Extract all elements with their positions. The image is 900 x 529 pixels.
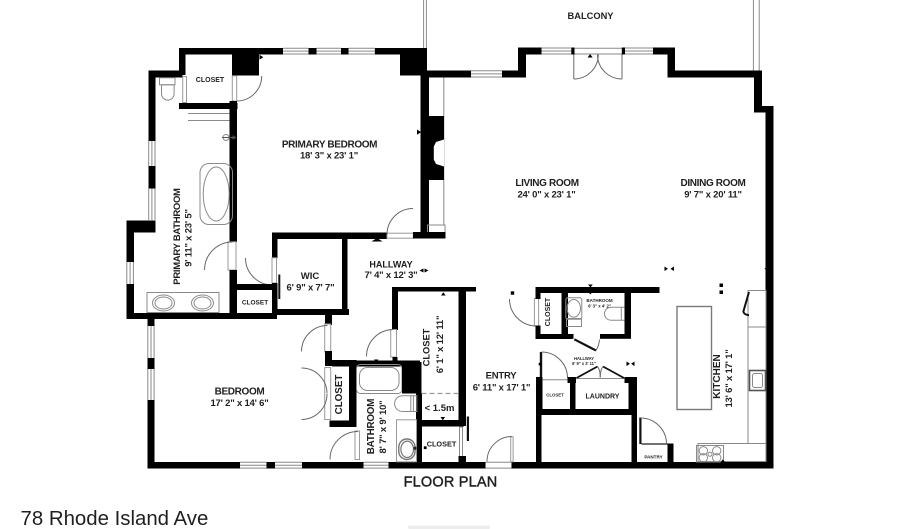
svg-text:6' 11" x 17' 1": 6' 11" x 17' 1" [473,383,531,394]
svg-text:BALCONY: BALCONY [568,11,615,21]
svg-text:18' 3" x 23' 1": 18' 3" x 23' 1" [300,151,358,162]
svg-text:WIC: WIC [301,271,320,282]
svg-text:CLOSET: CLOSET [545,297,552,326]
svg-text:7' 4" x 12' 3": 7' 4" x 12' 3" [365,270,418,281]
svg-text:LIVING ROOM: LIVING ROOM [515,178,578,189]
svg-text:CLOSET: CLOSET [427,440,457,449]
svg-text:DINING ROOM: DINING ROOM [680,178,745,189]
svg-text:KITCHEN: KITCHEN [712,354,723,398]
svg-text:17' 2" x 14' 6": 17' 2" x 14' 6" [210,398,268,409]
svg-text:BATHROOM: BATHROOM [366,399,377,454]
svg-text:LAUNDRY: LAUNDRY [586,394,620,401]
svg-text:9' 7" x 20' 11": 9' 7" x 20' 11" [684,190,742,201]
svg-text:PRIMARY BEDROOM: PRIMARY BEDROOM [282,140,377,151]
svg-text:HALLWAY: HALLWAY [369,260,412,270]
svg-text:CLOSET: CLOSET [422,328,432,366]
svg-text:PRIMARY BATHROOM: PRIMARY BATHROOM [172,188,183,285]
svg-text:PANTRY: PANTRY [644,455,662,460]
svg-text:BATHROOM: BATHROOM [586,298,612,303]
svg-text:13' 6" x 17' 1": 13' 6" x 17' 1" [724,349,735,407]
svg-text:9' 11" x 23' 5": 9' 11" x 23' 5" [184,209,195,267]
svg-text:CLOSET: CLOSET [196,77,225,84]
svg-text:24' 0" x 23' 1": 24' 0" x 23' 1" [517,190,575,201]
svg-text:CLOSET: CLOSET [546,393,564,398]
svg-text:CLOSET: CLOSET [334,375,345,415]
svg-text:FLOOR PLAN: FLOOR PLAN [404,475,498,491]
svg-text:6' 1" x 12' 11": 6' 1" x 12' 11" [435,316,446,374]
svg-text:CLOSET: CLOSET [242,300,268,307]
svg-text:BEDROOM: BEDROOM [215,387,265,398]
svg-text:8' 7" x 9' 10": 8' 7" x 9' 10" [378,401,389,454]
svg-text:< 1.5m: < 1.5m [425,403,455,414]
svg-text:78 Rhode Island Ave: 78 Rhode Island Ave [21,508,209,529]
svg-text:ENTRY: ENTRY [486,371,518,382]
svg-text:6' 9" x 7' 7": 6' 9" x 7' 7" [287,283,335,294]
svg-text:6' 9" x 3' 11": 6' 9" x 3' 11" [572,361,596,366]
